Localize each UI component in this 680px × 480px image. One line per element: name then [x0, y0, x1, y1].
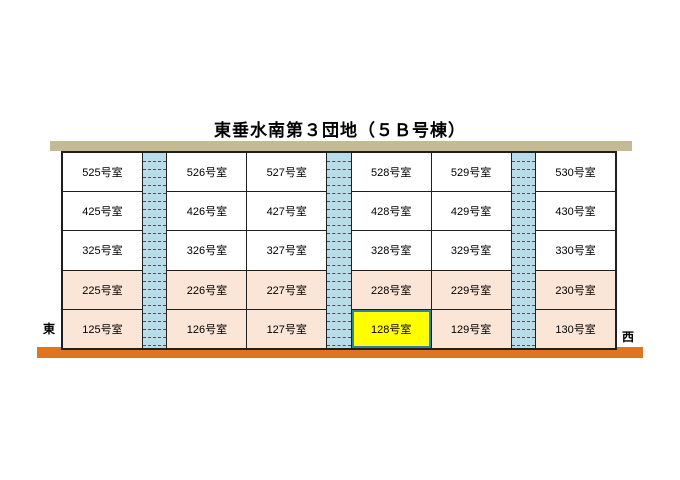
stair-step-line [327, 321, 351, 322]
room-cell: 427号室 [247, 192, 326, 230]
stair-step-line [143, 209, 167, 210]
diagram-title: 東垂水南第３団地（５Ｂ号棟） [0, 116, 680, 141]
stair-step-line [512, 321, 536, 322]
stair-step-line [327, 305, 351, 306]
stair-step-line [327, 233, 351, 234]
stair-step-line [512, 297, 536, 298]
room-cell: 328号室 [352, 231, 431, 269]
stair-step-line [327, 241, 351, 242]
room-cell: 426号室 [167, 192, 246, 230]
room-cell: 330号室 [536, 231, 615, 269]
stair-step-line [143, 345, 167, 346]
direction-label-west: 西 [622, 331, 634, 343]
stair-step-line [512, 337, 536, 338]
room-cell: 230号室 [536, 271, 615, 309]
stair-step-line [143, 337, 167, 338]
stair-step-line [512, 273, 536, 274]
stair-step-line [327, 201, 351, 202]
stair-step-line [143, 321, 167, 322]
room-cell: 327号室 [247, 231, 326, 269]
stair-step-line [512, 169, 536, 170]
stair-step-line [327, 265, 351, 266]
stair-step-line [143, 265, 167, 266]
room-cell: 226号室 [167, 271, 246, 309]
building-grid: 525号室526号室527号室528号室529号室530号室425号室426号室… [61, 151, 617, 350]
stair-step-line [143, 225, 167, 226]
stair-step-line [512, 177, 536, 178]
room-cell: 130号室 [536, 310, 615, 348]
stair-step-line [512, 225, 536, 226]
stair-step-line [512, 313, 536, 314]
stair-step-line [143, 289, 167, 290]
room-cell: 325号室 [63, 231, 142, 269]
stair-step-line [327, 193, 351, 194]
stair-step-line [512, 217, 536, 218]
stair-step-line [512, 265, 536, 266]
stair-step-line [143, 257, 167, 258]
stair-step-line [512, 289, 536, 290]
room-cell: 428号室 [352, 192, 431, 230]
stair-step-line [143, 297, 167, 298]
room-cell: 326号室 [167, 231, 246, 269]
room-cell: 530号室 [536, 153, 615, 191]
room-cell: 429号室 [432, 192, 511, 230]
stair-step-line [327, 289, 351, 290]
stair-step-line [512, 305, 536, 306]
stair-step-line [143, 233, 167, 234]
stair-step-line [512, 281, 536, 282]
stair-step-line [512, 329, 536, 330]
stair-step-line [512, 233, 536, 234]
stair-step-line [143, 305, 167, 306]
stair-step-line [327, 169, 351, 170]
stair-step-line [327, 209, 351, 210]
room-cell: 129号室 [432, 310, 511, 348]
stair-step-line [327, 281, 351, 282]
stairwell-column [512, 153, 536, 348]
stair-step-line [327, 257, 351, 258]
stair-step-line [143, 281, 167, 282]
stair-step-line [327, 177, 351, 178]
stair-step-line [512, 345, 536, 346]
stair-step-line [327, 337, 351, 338]
stairwell-column [327, 153, 351, 348]
stair-step-line [143, 193, 167, 194]
room-cell: 529号室 [432, 153, 511, 191]
room-cell: 229号室 [432, 271, 511, 309]
stair-step-line [327, 273, 351, 274]
stair-step-line [512, 241, 536, 242]
stair-step-line [327, 329, 351, 330]
stair-step-line [143, 185, 167, 186]
stair-step-line [143, 329, 167, 330]
stair-step-line [512, 209, 536, 210]
stair-step-line [143, 241, 167, 242]
stair-step-line [512, 185, 536, 186]
room-cell: 125号室 [63, 310, 142, 348]
room-cell: 430号室 [536, 192, 615, 230]
stair-step-line [327, 297, 351, 298]
stair-step-line [327, 217, 351, 218]
stair-step-line [327, 249, 351, 250]
stair-step-line [327, 185, 351, 186]
building-roof-bar [50, 141, 632, 151]
room-cell: 528号室 [352, 153, 431, 191]
room-cell: 526号室 [167, 153, 246, 191]
room-cell: 127号室 [247, 310, 326, 348]
stair-step-line [327, 345, 351, 346]
room-cell: 425号室 [63, 192, 142, 230]
stair-step-line [143, 273, 167, 274]
stair-step-line [512, 161, 536, 162]
stair-step-line [143, 169, 167, 170]
room-cell: 227号室 [247, 271, 326, 309]
room-cell: 329号室 [432, 231, 511, 269]
stair-step-line [327, 313, 351, 314]
stair-step-line [143, 217, 167, 218]
room-cell: 126号室 [167, 310, 246, 348]
stair-step-line [512, 193, 536, 194]
stair-step-line [143, 161, 167, 162]
stair-step-line [143, 177, 167, 178]
stair-step-line [512, 257, 536, 258]
room-cell-highlighted: 128号室 [352, 310, 431, 348]
stair-step-line [143, 249, 167, 250]
stair-step-line [512, 249, 536, 250]
room-cell: 527号室 [247, 153, 326, 191]
stair-step-line [512, 201, 536, 202]
direction-label-east: 東 [43, 323, 55, 335]
stair-step-line [327, 225, 351, 226]
stairwell-column [143, 153, 167, 348]
stair-step-line [143, 313, 167, 314]
stair-step-line [327, 161, 351, 162]
room-cell: 228号室 [352, 271, 431, 309]
room-cell: 525号室 [63, 153, 142, 191]
stair-step-line [143, 201, 167, 202]
room-cell: 225号室 [63, 271, 142, 309]
